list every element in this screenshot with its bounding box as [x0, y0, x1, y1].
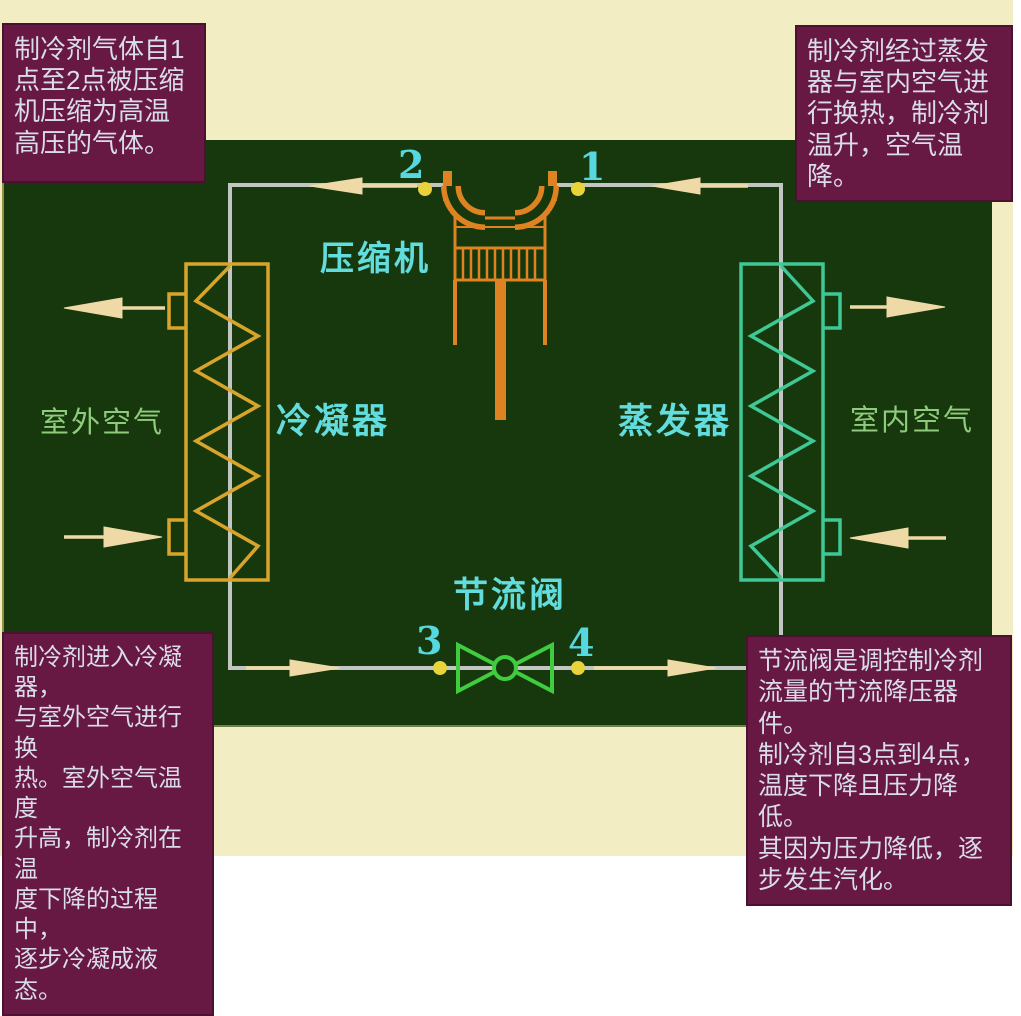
state-point-1-label: 1 — [579, 144, 605, 189]
condenser-tab-icon — [169, 294, 186, 328]
note-compression: 制冷剂气体自1 点至2点被压缩 机压缩为高温 高压的气体。 — [2, 23, 206, 183]
air-arrow-indoor-out-icon — [850, 297, 945, 317]
compressor-fins-icon — [463, 248, 535, 280]
air-arrow-outdoor-in-icon — [64, 527, 162, 547]
condenser-label: 冷凝器 — [276, 393, 390, 444]
outdoor-air-label: 室外空气 — [40, 399, 164, 441]
condenser-tab-icon — [169, 520, 186, 554]
flow-arrow-right-icon — [594, 660, 716, 676]
compressor-label: 压缩机 — [320, 231, 431, 280]
air-arrow-indoor-in-icon — [850, 528, 946, 548]
note-condensation: 制冷剂进入冷凝器， 与室外空气进行换 热。室外空气温度 升高，制冷剂在温 度下降… — [2, 632, 214, 1016]
compressor-rod-icon — [495, 280, 506, 420]
indoor-air-label: 室内空气 — [850, 397, 974, 439]
air-arrow-outdoor-out-icon — [64, 298, 165, 318]
evaporator-label: 蒸发器 — [618, 393, 732, 444]
state-point-4-label: 4 — [568, 620, 594, 665]
flow-arrow-left-icon — [652, 178, 748, 194]
state-point-dot — [433, 661, 447, 675]
state-point-2-label: 2 — [398, 142, 424, 187]
note-throttling: 节流阀是调控制冷剂 流量的节流降压器件。 制冷剂自3点到4点， 温度下降且压力降… — [746, 635, 1012, 906]
condenser-coil-icon — [196, 266, 258, 578]
refrigeration-cycle-diagram: 制冷剂气体自1 点至2点被压缩 机压缩为高温 高压的气体。 制冷剂经过蒸发 器与… — [0, 0, 1021, 864]
state-point-3-label: 3 — [416, 618, 442, 663]
note-evaporation: 制冷剂经过蒸发 器与室内空气进 行换热，制冷剂 温升，空气温降。 — [795, 25, 1013, 202]
evaporator-symbol — [741, 264, 840, 580]
condenser-symbol — [169, 264, 268, 580]
evaporator-tab-icon — [823, 294, 840, 328]
evaporator-tab-icon — [823, 520, 840, 554]
throttle-valve-label: 节流阀 — [453, 567, 567, 618]
flow-arrow-right-icon — [246, 660, 340, 676]
